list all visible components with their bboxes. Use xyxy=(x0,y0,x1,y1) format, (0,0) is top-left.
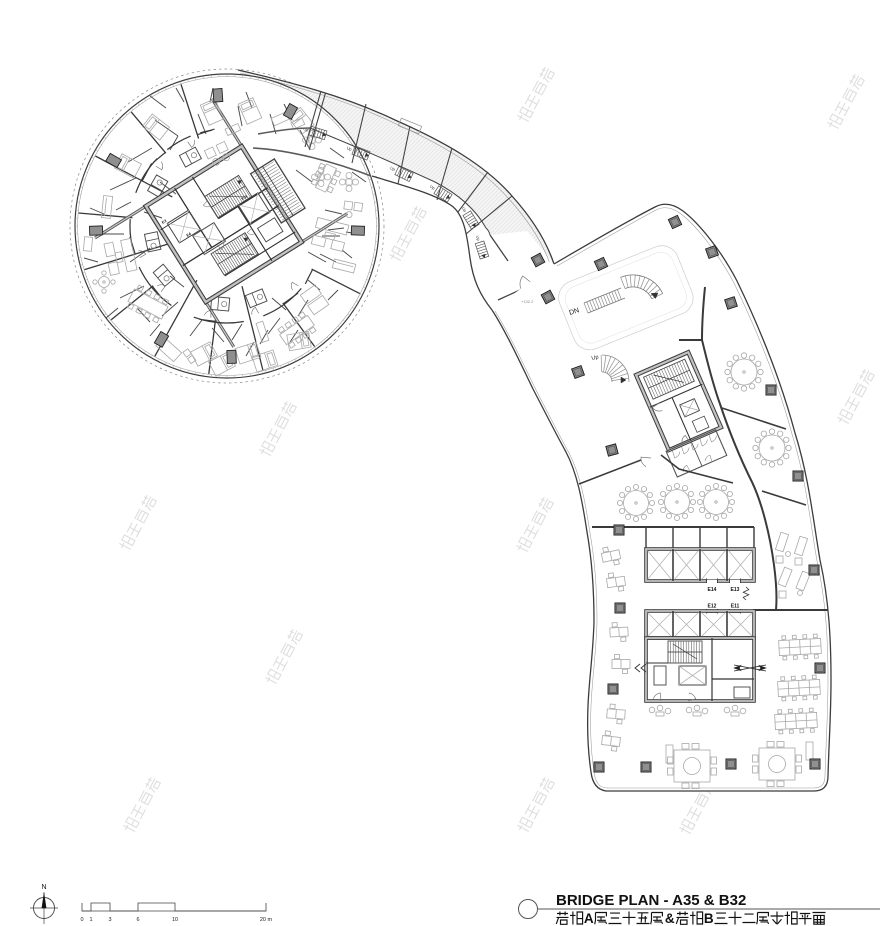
svg-text:1: 1 xyxy=(89,917,92,923)
svg-text:0: 0 xyxy=(80,917,83,923)
svg-text:BRIDGE PLAN - A35 & B32: BRIDGE PLAN - A35 & B32 xyxy=(556,892,746,909)
svg-text:6: 6 xyxy=(136,917,139,923)
svg-text:E14: E14 xyxy=(708,587,717,593)
svg-text:&: & xyxy=(665,911,675,926)
svg-text:10: 10 xyxy=(172,917,178,923)
svg-text:E11: E11 xyxy=(731,604,740,610)
svg-text:N: N xyxy=(41,884,46,891)
svg-text:20 m: 20 m xyxy=(260,917,273,923)
svg-text:A: A xyxy=(584,911,594,926)
svg-text:E12: E12 xyxy=(708,604,717,610)
svg-text:3: 3 xyxy=(108,917,111,923)
svg-text:B: B xyxy=(704,911,714,926)
svg-text:+132.2: +132.2 xyxy=(521,299,534,304)
svg-text:E13: E13 xyxy=(731,587,740,593)
